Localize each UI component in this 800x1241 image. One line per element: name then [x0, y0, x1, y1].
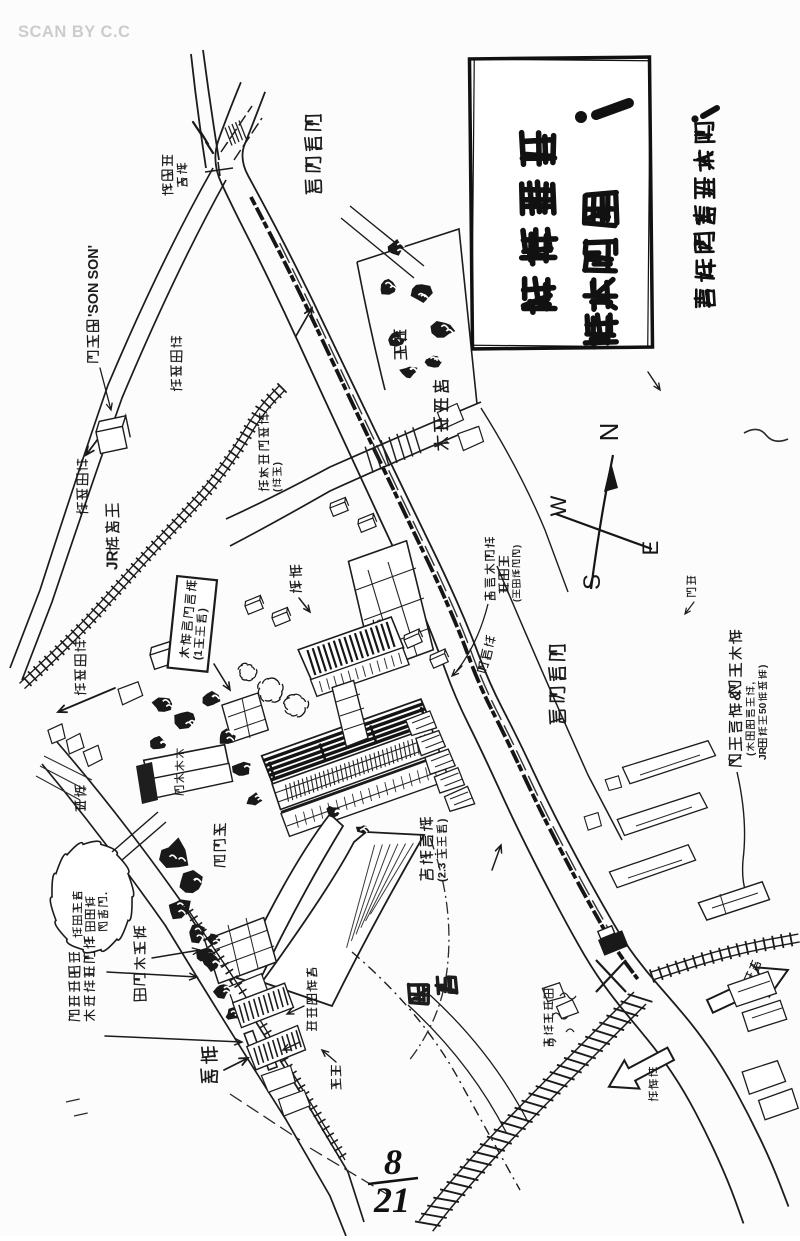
svg-text:50: 50	[758, 702, 769, 714]
svg-text:JR: JR	[105, 550, 122, 570]
svg-text:JR: JR	[758, 746, 769, 760]
svg-text:,: ,	[746, 682, 757, 685]
svg-text:S: S	[579, 574, 606, 590]
svg-text:E: E	[638, 541, 663, 556]
svg-text:): )	[437, 818, 449, 822]
svg-text:21: 21	[373, 1180, 410, 1220]
svg-text:SON': SON'	[86, 245, 102, 279]
svg-text:N: N	[594, 423, 624, 442]
svg-text:): )	[511, 545, 521, 548]
svg-text:): )	[272, 462, 283, 465]
svg-text:(: (	[272, 488, 283, 492]
svg-text:(1: (1	[192, 650, 205, 661]
svg-text:): )	[758, 665, 769, 668]
svg-text:'SON: 'SON	[86, 283, 102, 317]
svg-text:SCAN BY C.C: SCAN BY C.C	[18, 23, 130, 41]
svg-text:W: W	[546, 495, 571, 516]
svg-text:(2.3: (2.3	[437, 863, 449, 882]
svg-text:.: .	[98, 892, 110, 895]
svg-text:8: 8	[384, 1142, 402, 1182]
svg-text:(: (	[746, 752, 757, 756]
